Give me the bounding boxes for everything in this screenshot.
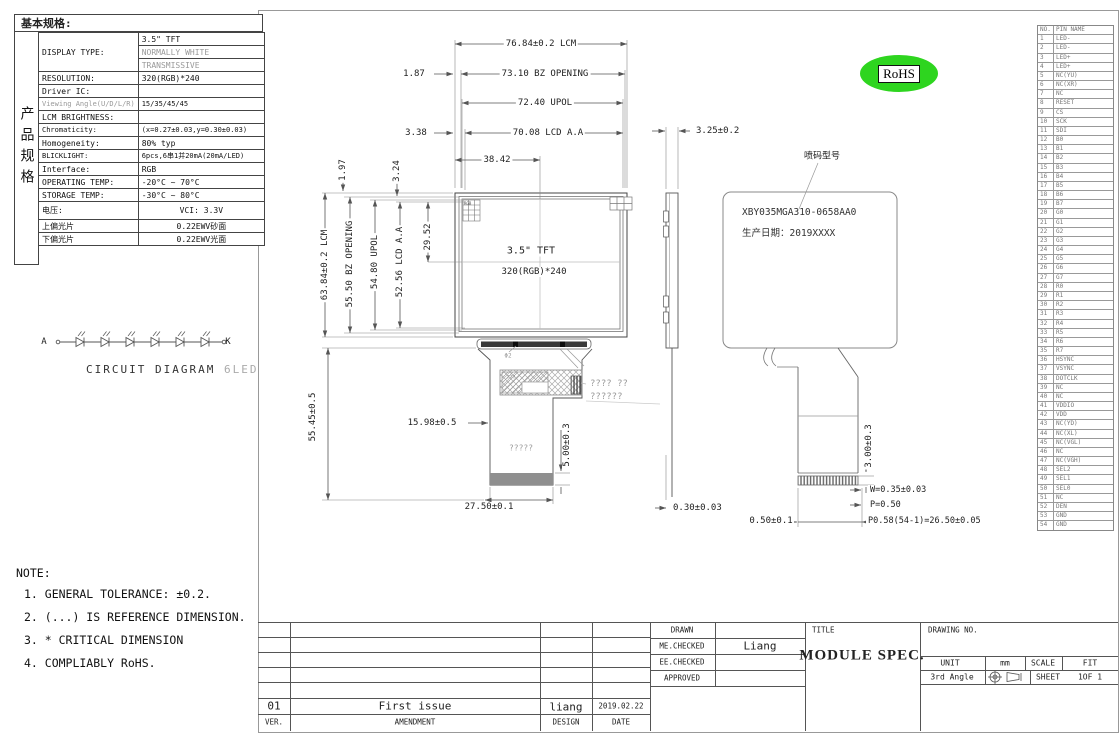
spec-label: DISPLAY TYPE: xyxy=(39,33,139,72)
pin-table: NO. PIN NAME 1LED-2LED-3LED+4LED+5NC(YU)… xyxy=(1037,25,1114,531)
led-symbol-icon xyxy=(176,338,184,347)
pin-number: 30 xyxy=(1038,301,1054,309)
pin-row: 27G7 xyxy=(1038,274,1113,283)
pin-row: 50SEL0 xyxy=(1038,485,1113,494)
pin-number: 42 xyxy=(1038,411,1054,419)
pin-name-header: PIN NAME xyxy=(1054,26,1113,34)
front-flex-stiffener xyxy=(500,370,660,404)
me-checked-label: ME.CHECKED xyxy=(659,642,704,651)
pin-name: NC xyxy=(1054,384,1113,392)
pin-number: 52 xyxy=(1038,503,1054,511)
screen-resolution-label: 320(RGB)*240 xyxy=(501,267,566,277)
pin-row: 15B3 xyxy=(1038,164,1113,173)
pin-row: 33R5 xyxy=(1038,329,1113,338)
dim-side-bottom-offset: 0.30±0.03 xyxy=(671,503,724,513)
pin-row: 2LED- xyxy=(1038,44,1113,53)
pin-name: VDD xyxy=(1054,411,1113,419)
rohs-logo: RoHS xyxy=(860,55,938,92)
revision-footer-date: DATE xyxy=(612,718,630,727)
pin-number: 36 xyxy=(1038,356,1054,364)
spec-label: Homogeneity: xyxy=(39,137,139,150)
pin-row: 53GND xyxy=(1038,512,1113,521)
pin-name: G1 xyxy=(1054,219,1113,227)
pin-number: 46 xyxy=(1038,448,1054,456)
spec-label: Viewing Angle(U/D/L/R) xyxy=(39,98,139,111)
dim-hole-diameter: Φ2 xyxy=(504,353,511,360)
pin-name: SEL0 xyxy=(1054,485,1113,493)
pin-row: 51NC xyxy=(1038,494,1113,503)
pin-name: VDDIO xyxy=(1054,402,1113,410)
pin-row: 25G5 xyxy=(1038,255,1113,264)
pin-number: 27 xyxy=(1038,274,1054,282)
spec-value: 3.5" TFT xyxy=(138,33,264,46)
pin-name: SEL1 xyxy=(1054,475,1113,483)
pin-number: 5 xyxy=(1038,72,1054,80)
pin-row: 45NC(VGL) xyxy=(1038,439,1113,448)
pin-number: 7 xyxy=(1038,90,1054,98)
rohs-logo-text: RoHS xyxy=(878,65,920,83)
pin-number: 25 xyxy=(1038,255,1054,263)
dim-back-connector-height: 3.00±0.3 xyxy=(864,422,874,469)
spec-value: 15/35/45/45 xyxy=(138,98,264,111)
pin-number: 32 xyxy=(1038,320,1054,328)
pin-name: R6 xyxy=(1054,338,1113,346)
pin-row: 11SDI xyxy=(1038,127,1113,136)
drawn-label: DRAWN xyxy=(671,626,694,635)
pin-row: 48SEL2 xyxy=(1038,466,1113,475)
pin-name: B4 xyxy=(1054,173,1113,181)
front-extension-lines xyxy=(322,40,627,504)
pin-name: G3 xyxy=(1054,237,1113,245)
spec-row: Homogeneity:80% typ xyxy=(39,137,265,150)
dim-tail-height: 55.45±0.5 xyxy=(308,391,318,444)
title-label: TITLE xyxy=(812,626,835,635)
pin-name: B3 xyxy=(1054,164,1113,172)
note-item: 3. * CRITICAL DIMENSION xyxy=(24,633,246,647)
approved-label: APPROVED xyxy=(664,674,700,683)
front-view-crosshair xyxy=(462,199,620,329)
notes-title: NOTE: xyxy=(16,566,246,580)
pin-row: 10SCK xyxy=(1038,118,1113,127)
led-symbol-icon xyxy=(101,338,109,347)
front-flex-contact-strip xyxy=(490,473,553,485)
pin-name: G7 xyxy=(1054,274,1113,282)
pin-row: 40NC xyxy=(1038,393,1113,402)
pin-name: R0 xyxy=(1054,283,1113,291)
pin-name: VSYNC xyxy=(1054,365,1113,373)
led-symbol-icon xyxy=(151,338,159,347)
pin-row: 39NC xyxy=(1038,384,1113,393)
dim-total-pitch: P0.58(54-1)=26.50±0.05 xyxy=(866,516,983,526)
pin-row: 4LED+ xyxy=(1038,63,1113,72)
spec-label: 电压: xyxy=(39,202,139,220)
pin-row: 20G0 xyxy=(1038,209,1113,218)
spec-label: OPERATING TEMP: xyxy=(39,176,139,189)
front-view-outline xyxy=(455,193,627,337)
pin-number: 26 xyxy=(1038,264,1054,272)
pin-name: SCK xyxy=(1054,118,1113,126)
spec-row: 下偏光片0.22EWV光面 xyxy=(39,233,265,246)
dim-tail-width: 27.50±0.1 xyxy=(463,502,516,512)
spec-label: Driver IC: xyxy=(39,85,139,98)
pin-number: 12 xyxy=(1038,136,1054,144)
drawing-no-label: DRAWING NO. xyxy=(928,626,978,635)
pin-row: 47NC(VGH) xyxy=(1038,457,1113,466)
pin-number: 10 xyxy=(1038,118,1054,126)
pin-row: 32R4 xyxy=(1038,320,1113,329)
pin-number: 38 xyxy=(1038,375,1054,383)
pin-number: 51 xyxy=(1038,494,1054,502)
circuit-title-text: CIRCUIT DIAGRAM xyxy=(86,363,215,376)
circuit-diagram xyxy=(56,332,226,347)
pin-number: 29 xyxy=(1038,292,1054,300)
pin-row: 21G1 xyxy=(1038,219,1113,228)
pin-row: 49SEL1 xyxy=(1038,475,1113,484)
pin-row: 13B1 xyxy=(1038,145,1113,154)
pin-row: 42VDD xyxy=(1038,411,1113,420)
pin-number: 6 xyxy=(1038,81,1054,89)
pin-number: 45 xyxy=(1038,439,1054,447)
spec-row: Driver IC: xyxy=(39,85,265,98)
dim-pad-width: W=0.35±0.03 xyxy=(868,485,928,495)
pin-number: 34 xyxy=(1038,338,1054,346)
spec-label: 上偏光片 xyxy=(39,220,139,233)
revision-version: 01 xyxy=(267,700,280,713)
sheet-value: 1OF 1 xyxy=(1078,673,1102,682)
pin-name: NC(VGL) xyxy=(1054,439,1113,447)
pin-number: 40 xyxy=(1038,393,1054,401)
pin-name: B6 xyxy=(1054,191,1113,199)
dim-bz-opening-height: 55.50 BZ OPENING xyxy=(345,219,355,310)
spec-label: Interface: xyxy=(39,163,139,176)
pin-number: 21 xyxy=(1038,219,1054,227)
spec-row: RESOLUTION:320(RGB)*240 xyxy=(39,72,265,85)
pin-number: 16 xyxy=(1038,173,1054,181)
unit-label: UNIT xyxy=(940,659,959,668)
pin-row: 44NC(XL) xyxy=(1038,430,1113,439)
spec-row: LCM BRIGHTNESS: xyxy=(39,111,265,124)
unit-value: mm xyxy=(1000,659,1010,668)
spec-side-label-text: 产品规格 xyxy=(17,106,37,190)
pin-row: 19B7 xyxy=(1038,200,1113,209)
pin-number: 15 xyxy=(1038,164,1054,172)
pin-number: 19 xyxy=(1038,200,1054,208)
pin-name: G6 xyxy=(1054,264,1113,272)
pin-name: LED- xyxy=(1054,35,1113,43)
pin-number: 53 xyxy=(1038,512,1054,520)
spec-row: DISPLAY TYPE:3.5" TFT xyxy=(39,33,265,46)
corner-notch xyxy=(610,197,632,210)
spec-row: OPERATING TEMP:-20°C ~ 70°C xyxy=(39,176,265,189)
pin-name: NC(YD) xyxy=(1054,420,1113,428)
pin-row: 30R2 xyxy=(1038,301,1113,310)
dim-lcm-width: 76.84±0.2 LCM xyxy=(504,39,578,49)
note-item: 4. COMPLIABLY RoHS. xyxy=(24,656,246,670)
pin-row: 22G2 xyxy=(1038,228,1113,237)
pin-name: LED+ xyxy=(1054,63,1113,71)
stiffener-label: ??? xyxy=(506,375,515,381)
flex-note-line2: ?????? xyxy=(588,392,625,402)
pin-name: G4 xyxy=(1054,246,1113,254)
spec-row: Viewing Angle(U/D/L/R)15/35/45/45 xyxy=(39,98,265,111)
pin-name: G5 xyxy=(1054,255,1113,263)
circuit-led-count-label: 6LED xyxy=(224,363,259,376)
pin-number: 22 xyxy=(1038,228,1054,236)
flex-area-label: ????? xyxy=(507,444,535,453)
spec-label: STORAGE TEMP: xyxy=(39,189,139,202)
pin-row: 36HSYNC xyxy=(1038,356,1113,365)
pin-number: 35 xyxy=(1038,347,1054,355)
pin-number: 4 xyxy=(1038,63,1054,71)
dim-offset-187: 1.87 xyxy=(401,69,427,79)
revision-amendment: First issue xyxy=(379,700,452,713)
circuit-cathode-label: K xyxy=(223,337,232,347)
pin-number: 47 xyxy=(1038,457,1054,465)
spec-row: 电压:VCI: 3.3V xyxy=(39,202,265,220)
spec-value: 0.22EWV光面 xyxy=(138,233,264,246)
pin-row: 7NC xyxy=(1038,90,1113,99)
pin-row: 6NC(XR) xyxy=(1038,81,1113,90)
spec-row: STORAGE TEMP:-30°C ~ 80°C xyxy=(39,189,265,202)
pin-number: 37 xyxy=(1038,365,1054,373)
pin-name: GND xyxy=(1054,521,1113,530)
pin-number: 8 xyxy=(1038,99,1054,107)
pin-number: 24 xyxy=(1038,246,1054,254)
pin-name: LED- xyxy=(1054,44,1113,52)
pin-name: SEL2 xyxy=(1054,466,1113,474)
circuit-diagram-title: CIRCUIT DIAGRAM 6LED xyxy=(86,363,258,376)
pin-number: 14 xyxy=(1038,154,1054,162)
pin-name: NC xyxy=(1054,393,1113,401)
pin-row: 31R3 xyxy=(1038,310,1113,319)
pin-no-header: NO. xyxy=(1038,26,1054,34)
dim-half-height: 29.52 xyxy=(423,221,433,252)
spec-value xyxy=(138,85,264,98)
pin-row: 41VDDIO xyxy=(1038,402,1113,411)
led-symbol-icon xyxy=(201,338,209,347)
spec-label: 下偏光片 xyxy=(39,233,139,246)
spec-value: TRANSMISSIVE xyxy=(138,59,264,72)
dim-lcm-height: 63.84±0.2 LCM xyxy=(320,228,330,302)
pin-name: R2 xyxy=(1054,301,1113,309)
dim-lcd-aa-width: 70.08 LCD A.A xyxy=(511,128,585,138)
pin-name: CS xyxy=(1054,109,1113,117)
spec-value: NORMALLY WHITE xyxy=(138,46,264,59)
dim-tail-connector-height: 5.00±0.3 xyxy=(562,421,572,468)
revision-footer-ver: VER. xyxy=(265,718,283,727)
revision-footer-amendment: AMENDMENT xyxy=(395,718,436,727)
pin-name: NC(XR) xyxy=(1054,81,1113,89)
pin-number: 9 xyxy=(1038,109,1054,117)
pin-number: 2 xyxy=(1038,44,1054,52)
spec-row: 上偏光片0.22EWV砂面 xyxy=(39,220,265,233)
spec-label: RESOLUTION: xyxy=(39,72,139,85)
note-item: 2. (...) IS REFERENCE DIMENSION. xyxy=(24,610,246,624)
pin-number: 18 xyxy=(1038,191,1054,199)
pin-number: 17 xyxy=(1038,182,1054,190)
revision-date: 2019.02.22 xyxy=(598,702,643,711)
dim-upol-width: 72.40 UPOL xyxy=(516,98,574,108)
pin-number: 11 xyxy=(1038,127,1054,135)
pin-name: R4 xyxy=(1054,320,1113,328)
pin-row: 26G6 xyxy=(1038,264,1113,273)
front-flex-outline xyxy=(478,346,592,485)
pin-number: 50 xyxy=(1038,485,1054,493)
dim-pitch: P=0.50 xyxy=(868,500,903,510)
pin-row: 28R0 xyxy=(1038,283,1113,292)
spec-value: 80% typ xyxy=(138,137,264,150)
pin-row: 35R7 xyxy=(1038,347,1113,356)
pin-row: 52DEN xyxy=(1038,503,1113,512)
pin-row: 34R6 xyxy=(1038,338,1113,347)
dim-half-width: 38.42 xyxy=(481,155,512,165)
pin-name: NC xyxy=(1054,90,1113,98)
spec-row: Interface:RGB xyxy=(39,163,265,176)
pin-name: SDI xyxy=(1054,127,1113,135)
pin-number: 49 xyxy=(1038,475,1054,483)
drawing-title: MODULE SPEC. xyxy=(799,648,924,665)
pin-row: 5NC(YU) xyxy=(1038,72,1113,81)
pin-number: 43 xyxy=(1038,420,1054,428)
pin-name: G2 xyxy=(1054,228,1113,236)
spec-value: -30°C ~ 80°C xyxy=(138,189,264,202)
pin-name: NC(YU) xyxy=(1054,72,1113,80)
pin-number: 23 xyxy=(1038,237,1054,245)
screen-size-label: 3.5" TFT xyxy=(507,246,555,257)
sheet-label: SHEET xyxy=(1036,673,1060,682)
spec-value: 320(RGB)*240 xyxy=(138,72,264,85)
pin-number: 3 xyxy=(1038,54,1054,62)
pin-row: 8RESET xyxy=(1038,99,1113,108)
led-symbol-icon xyxy=(76,338,84,347)
notes-block: NOTE: 1. GENERAL TOLERANCE: ±0.2.2. (...… xyxy=(16,566,246,679)
pin-name: R3 xyxy=(1054,310,1113,318)
spec-table-side-label: 产品规格 xyxy=(14,32,39,265)
pin-row: 43NC(YD) xyxy=(1038,420,1113,429)
pin-name: B2 xyxy=(1054,154,1113,162)
pin-row: 17B5 xyxy=(1038,182,1113,191)
drawing-sheet: 基本规格: 产品规格 DISPLAY TYPE:3.5" TFTNORMALLY… xyxy=(0,0,1120,744)
spec-row: Chromaticity:(x=0.27±0.03,y=0.30±0.03) xyxy=(39,124,265,137)
pin-name: GND xyxy=(1054,512,1113,520)
back-production-date: 生产日期：2019XXXX xyxy=(742,225,835,239)
pin-name: NC(VGH) xyxy=(1054,457,1113,465)
pin-number: 41 xyxy=(1038,402,1054,410)
pin-name: R1 xyxy=(1054,292,1113,300)
pin-row: 12B0 xyxy=(1038,136,1113,145)
pin-row: 1LED- xyxy=(1038,35,1113,44)
pin-name: R7 xyxy=(1054,347,1113,355)
pin-row: 14B2 xyxy=(1038,154,1113,163)
dim-edge-offset: 0.50±0.1 xyxy=(747,516,794,526)
pin-name: B1 xyxy=(1054,145,1113,153)
pin-name: RESET xyxy=(1054,99,1113,107)
side-view xyxy=(664,193,679,497)
pin-number: 48 xyxy=(1038,466,1054,474)
pin-name: NC(XL) xyxy=(1054,430,1113,438)
spec-value: RGB xyxy=(138,163,264,176)
pin-row: 24G4 xyxy=(1038,246,1113,255)
flex-note-line1: ???? ?? xyxy=(588,379,630,389)
pin-number: 1 xyxy=(1038,35,1054,43)
pin-number: 28 xyxy=(1038,283,1054,291)
me-checked-value: Liang xyxy=(743,640,776,653)
pin-row: 18B6 xyxy=(1038,191,1113,200)
dim-offset-338: 3.38 xyxy=(403,128,429,138)
pin-name: G0 xyxy=(1054,209,1113,217)
spec-value: 6pcs,6串1并20mA(20mA/LED) xyxy=(138,150,264,163)
spec-label: BLICKLIGHT: xyxy=(39,150,139,163)
pin-number: 33 xyxy=(1038,329,1054,337)
pin-number: 31 xyxy=(1038,310,1054,318)
projection-angle-label: 3rd Angle xyxy=(930,673,973,682)
projection-symbol-icon xyxy=(988,670,1021,684)
revision-footer-design: DESIGN xyxy=(552,718,579,727)
spec-value: -20°C ~ 70°C xyxy=(138,176,264,189)
dim-lcd-aa-height: 52.56 LCD A.A xyxy=(395,225,405,299)
pin-row: 37VSYNC xyxy=(1038,365,1113,374)
spec-label: LCM BRIGHTNESS: xyxy=(39,111,139,124)
pin-name: DOTCLK xyxy=(1054,375,1113,383)
pin-row: 9CS xyxy=(1038,109,1113,118)
pin-name: LED+ xyxy=(1054,54,1113,62)
dim-side-thickness: 3.25±0.2 xyxy=(694,126,741,136)
pin-name: B5 xyxy=(1054,182,1113,190)
spec-value: (x=0.27±0.03,y=0.30±0.03) xyxy=(138,124,264,137)
spec-value: 0.22EWV砂面 xyxy=(138,220,264,233)
ee-checked-label: EE.CHECKED xyxy=(659,658,704,667)
dim-bz-opening-width: 73.10 BZ OPENING xyxy=(500,69,591,79)
pin-row: 3LED+ xyxy=(1038,54,1113,63)
note-item: 1. GENERAL TOLERANCE: ±0.2. xyxy=(24,587,246,601)
pin-row: 46NC xyxy=(1038,448,1113,457)
pin-row: 38DOTCLK xyxy=(1038,375,1113,384)
dim-tail-top: 15.98±0.5 xyxy=(406,418,459,428)
spec-value xyxy=(138,111,264,124)
pin-number: 39 xyxy=(1038,384,1054,392)
spec-value: VCI: 3.3V xyxy=(138,202,264,220)
dim-offset-324: 3.24 xyxy=(392,158,402,184)
dim-upol-height: 54.80 UPOL xyxy=(370,233,380,291)
pin-table-header: NO. PIN NAME xyxy=(1038,26,1113,35)
pin-number: 13 xyxy=(1038,145,1054,153)
revision-designer: liang xyxy=(549,701,582,714)
led-symbol-icon xyxy=(126,338,134,347)
spec-label: Chromaticity: xyxy=(39,124,139,137)
pin-row: 29R1 xyxy=(1038,292,1113,301)
circuit-anode-label: A xyxy=(39,337,48,347)
pin-name: HSYNC xyxy=(1054,356,1113,364)
pin-number: 20 xyxy=(1038,209,1054,217)
pin-name: B7 xyxy=(1054,200,1113,208)
pin-number: 44 xyxy=(1038,430,1054,438)
pin-name: NC xyxy=(1054,448,1113,456)
back-callout-label: 喷码型号 xyxy=(802,149,842,162)
front-connector-strip xyxy=(477,339,591,349)
pin-row: 16B4 xyxy=(1038,173,1113,182)
pin-row: 23G3 xyxy=(1038,237,1113,246)
pin-name: R5 xyxy=(1054,329,1113,337)
scale-label: SCALE xyxy=(1031,659,1055,668)
pin-name: DEN xyxy=(1054,503,1113,511)
pin-name: B0 xyxy=(1054,136,1113,144)
back-model-number: XBY035MGA310-0658AA0 xyxy=(742,207,856,218)
rgb-pixel-label: RGB xyxy=(464,201,471,206)
pin-number: 54 xyxy=(1038,521,1054,530)
spec-table-title: 基本规格: xyxy=(14,14,263,32)
scale-value: FIT xyxy=(1083,659,1097,668)
spec-row: BLICKLIGHT:6pcs,6串1并20mA(20mA/LED) xyxy=(39,150,265,163)
